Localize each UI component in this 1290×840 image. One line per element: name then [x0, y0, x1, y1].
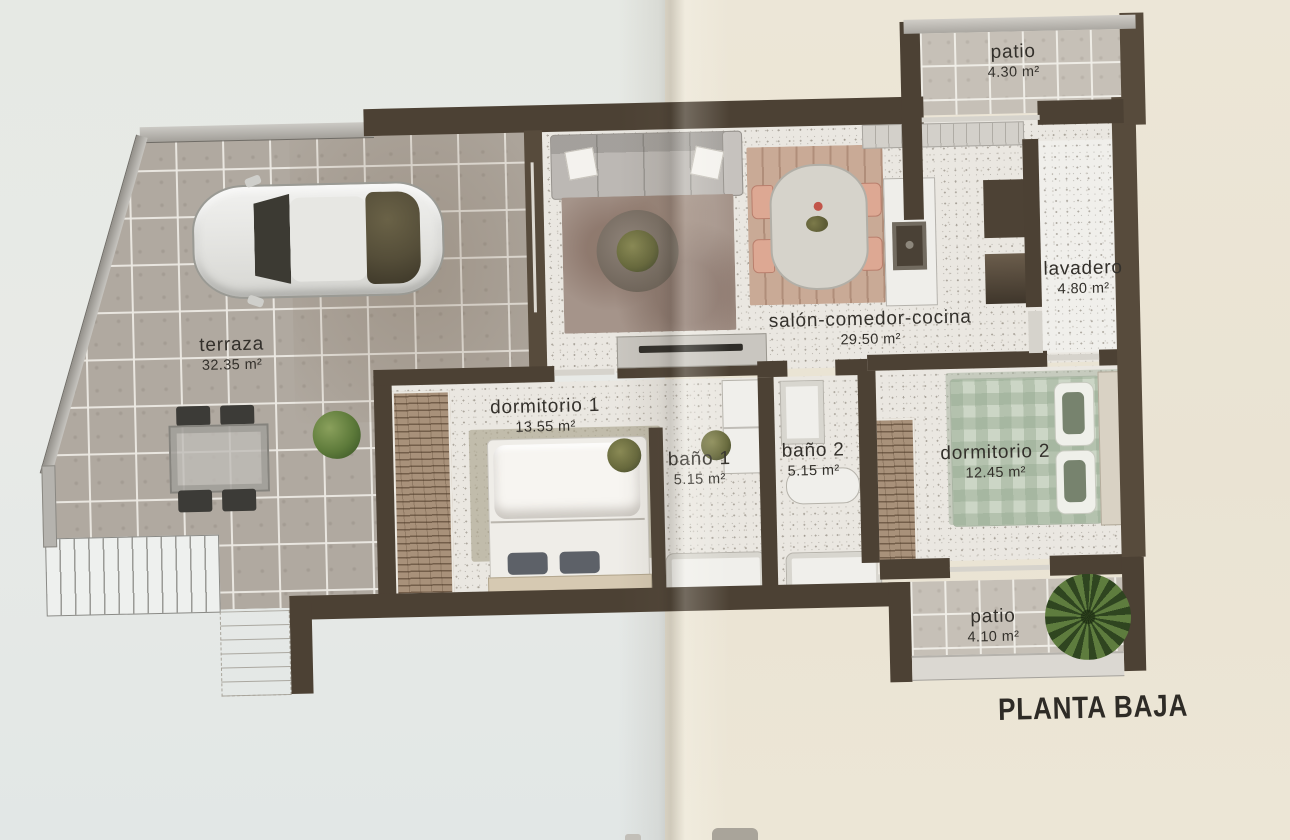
sofa-armrest: [722, 131, 743, 196]
room-label-patio-inferior: patio 4.10 m²: [967, 605, 1020, 646]
terraza-left-railing-end: [41, 465, 57, 547]
car-rear-window: [365, 191, 421, 284]
terrace-table: [168, 423, 270, 493]
bed-1-cushion: [507, 552, 547, 575]
room-lavadero: [1038, 139, 1117, 353]
bed-1-cushion: [559, 551, 599, 574]
sofa-cushion: [564, 147, 598, 181]
room-name: terraza: [199, 334, 264, 357]
floorplan: terraza 32.35 m² salón-comedor-cocina 29…: [0, 0, 1290, 840]
wall: [880, 558, 950, 580]
bottom-edge-object-small: [625, 834, 641, 840]
room-name: lavadero: [1043, 257, 1123, 280]
room-area: 32.35 m²: [200, 357, 265, 375]
bed-2-accent-cushion: [1062, 392, 1085, 434]
wall: [289, 596, 313, 694]
room-area: 4.30 m²: [988, 64, 1040, 81]
room-area: 4.10 m²: [967, 629, 1019, 646]
wall: [757, 361, 787, 378]
bano-2-vanity: [780, 380, 825, 445]
kitchen-counter-top: [862, 121, 1025, 149]
wardrobe-dormitorio-2: [874, 418, 918, 575]
door-threshold: [1028, 311, 1043, 353]
room-label-dormitorio-2: dormitorio 2 12.45 m²: [940, 441, 1051, 483]
room-name: dormitorio 1: [490, 395, 600, 419]
door-threshold: [1047, 354, 1099, 361]
bottom-edge-object: [712, 828, 758, 840]
door-threshold: [950, 565, 1050, 572]
wardrobe-dormitorio-1: [392, 390, 455, 595]
kitchen-appliance: [985, 253, 1030, 304]
wall: [888, 582, 912, 682]
floorplan-photo: terraza 32.35 m² salón-comedor-cocina 29…: [0, 0, 1290, 840]
car-windshield: [253, 194, 291, 285]
terrace-chair: [222, 489, 256, 512]
exterior-stairs: [45, 535, 221, 617]
room-name: dormitorio 2: [940, 441, 1050, 465]
room-label-patio-superior: patio 4.30 m²: [987, 41, 1040, 82]
terrace-chair: [176, 406, 210, 427]
kitchen-tall-unit: [983, 179, 1028, 238]
wall: [1037, 99, 1124, 125]
room-area: 4.80 m²: [1044, 280, 1124, 298]
room-name: patio: [987, 41, 1039, 63]
bed-2-accent-cushion: [1063, 460, 1086, 502]
room-name: baño 1: [668, 448, 731, 471]
room-area: 13.55 m²: [490, 418, 600, 437]
stairs-dashed-continuation: [220, 610, 292, 697]
plan-title: PLANTA BAJA: [998, 688, 1189, 728]
car-roof: [289, 196, 367, 282]
room-area: 5.15 m²: [782, 463, 845, 481]
room-label-dormitorio-1: dormitorio 1 13.55 m²: [490, 395, 601, 437]
wall: [617, 365, 763, 378]
room-area: 5.15 m²: [668, 471, 731, 489]
room-label-terraza: terraza 32.35 m²: [199, 334, 265, 375]
room-area: 12.45 m²: [941, 464, 1051, 483]
door-threshold: [554, 369, 614, 376]
sofa-cushion: [690, 146, 724, 180]
room-label-salon-comedor-cocina: salón-comedor-cocina 29.50 m²: [769, 306, 973, 350]
room-label-bano-1: baño 1 5.15 m²: [668, 448, 732, 489]
room-label-lavadero: lavadero 4.80 m²: [1043, 257, 1123, 298]
room-label-bano-2: baño 2 5.15 m²: [782, 439, 846, 480]
room-name: patio: [967, 605, 1019, 627]
terrace-chair: [220, 405, 254, 426]
terrace-chair: [178, 490, 212, 513]
room-name: salón-comedor-cocina: [769, 306, 972, 332]
room-name: baño 2: [782, 439, 845, 462]
